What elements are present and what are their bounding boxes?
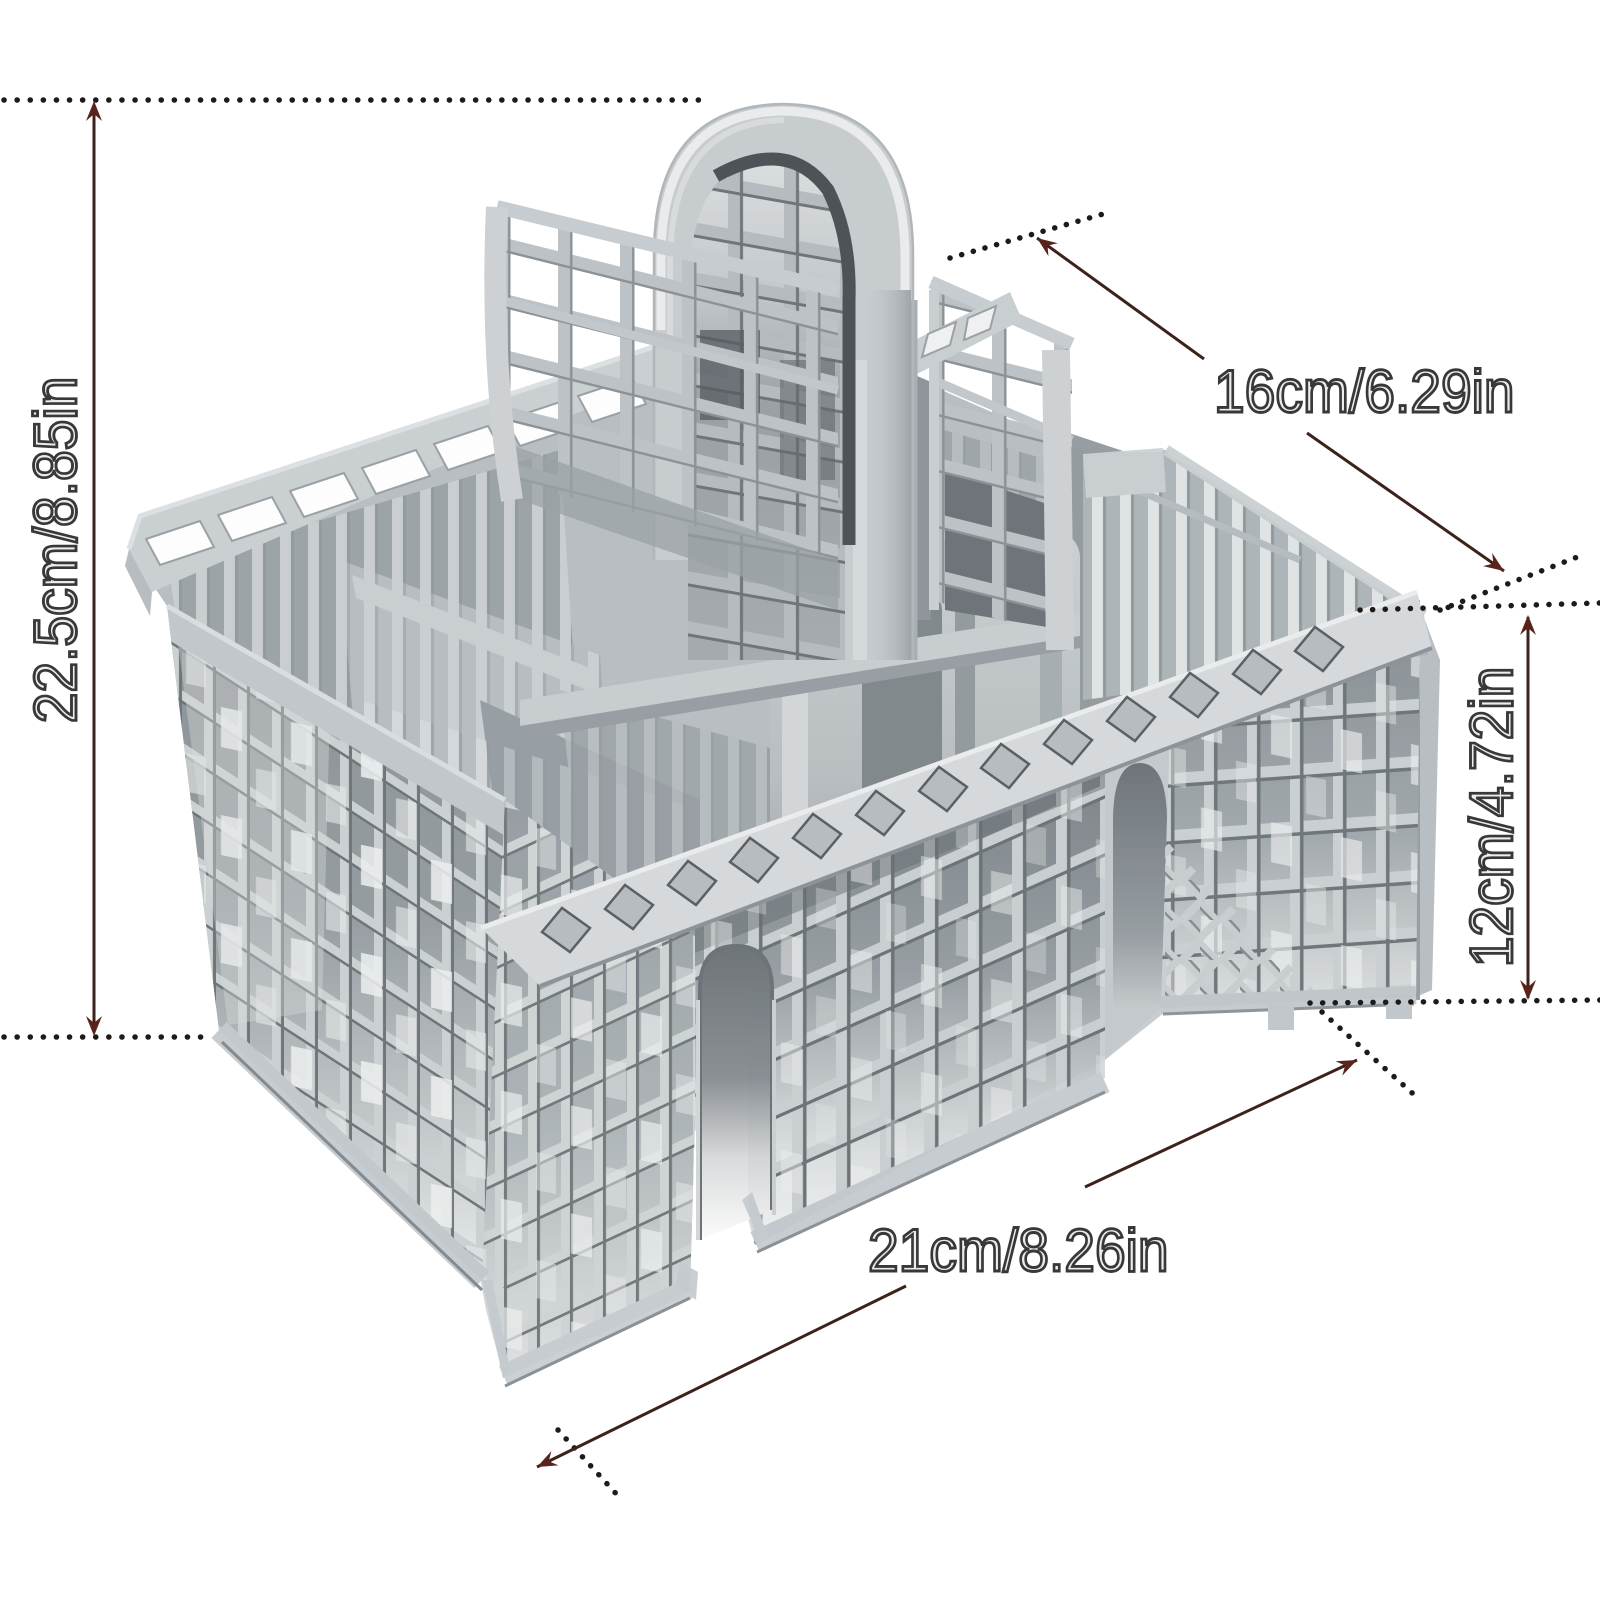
svg-text:16cm/6.29in: 16cm/6.29in — [1214, 359, 1515, 426]
svg-text:12cm/4.72in: 12cm/4.72in — [1459, 667, 1526, 968]
svg-text:22.5cm/8.85in: 22.5cm/8.85in — [23, 377, 90, 724]
svg-text:21cm/8.26in: 21cm/8.26in — [868, 1218, 1169, 1285]
